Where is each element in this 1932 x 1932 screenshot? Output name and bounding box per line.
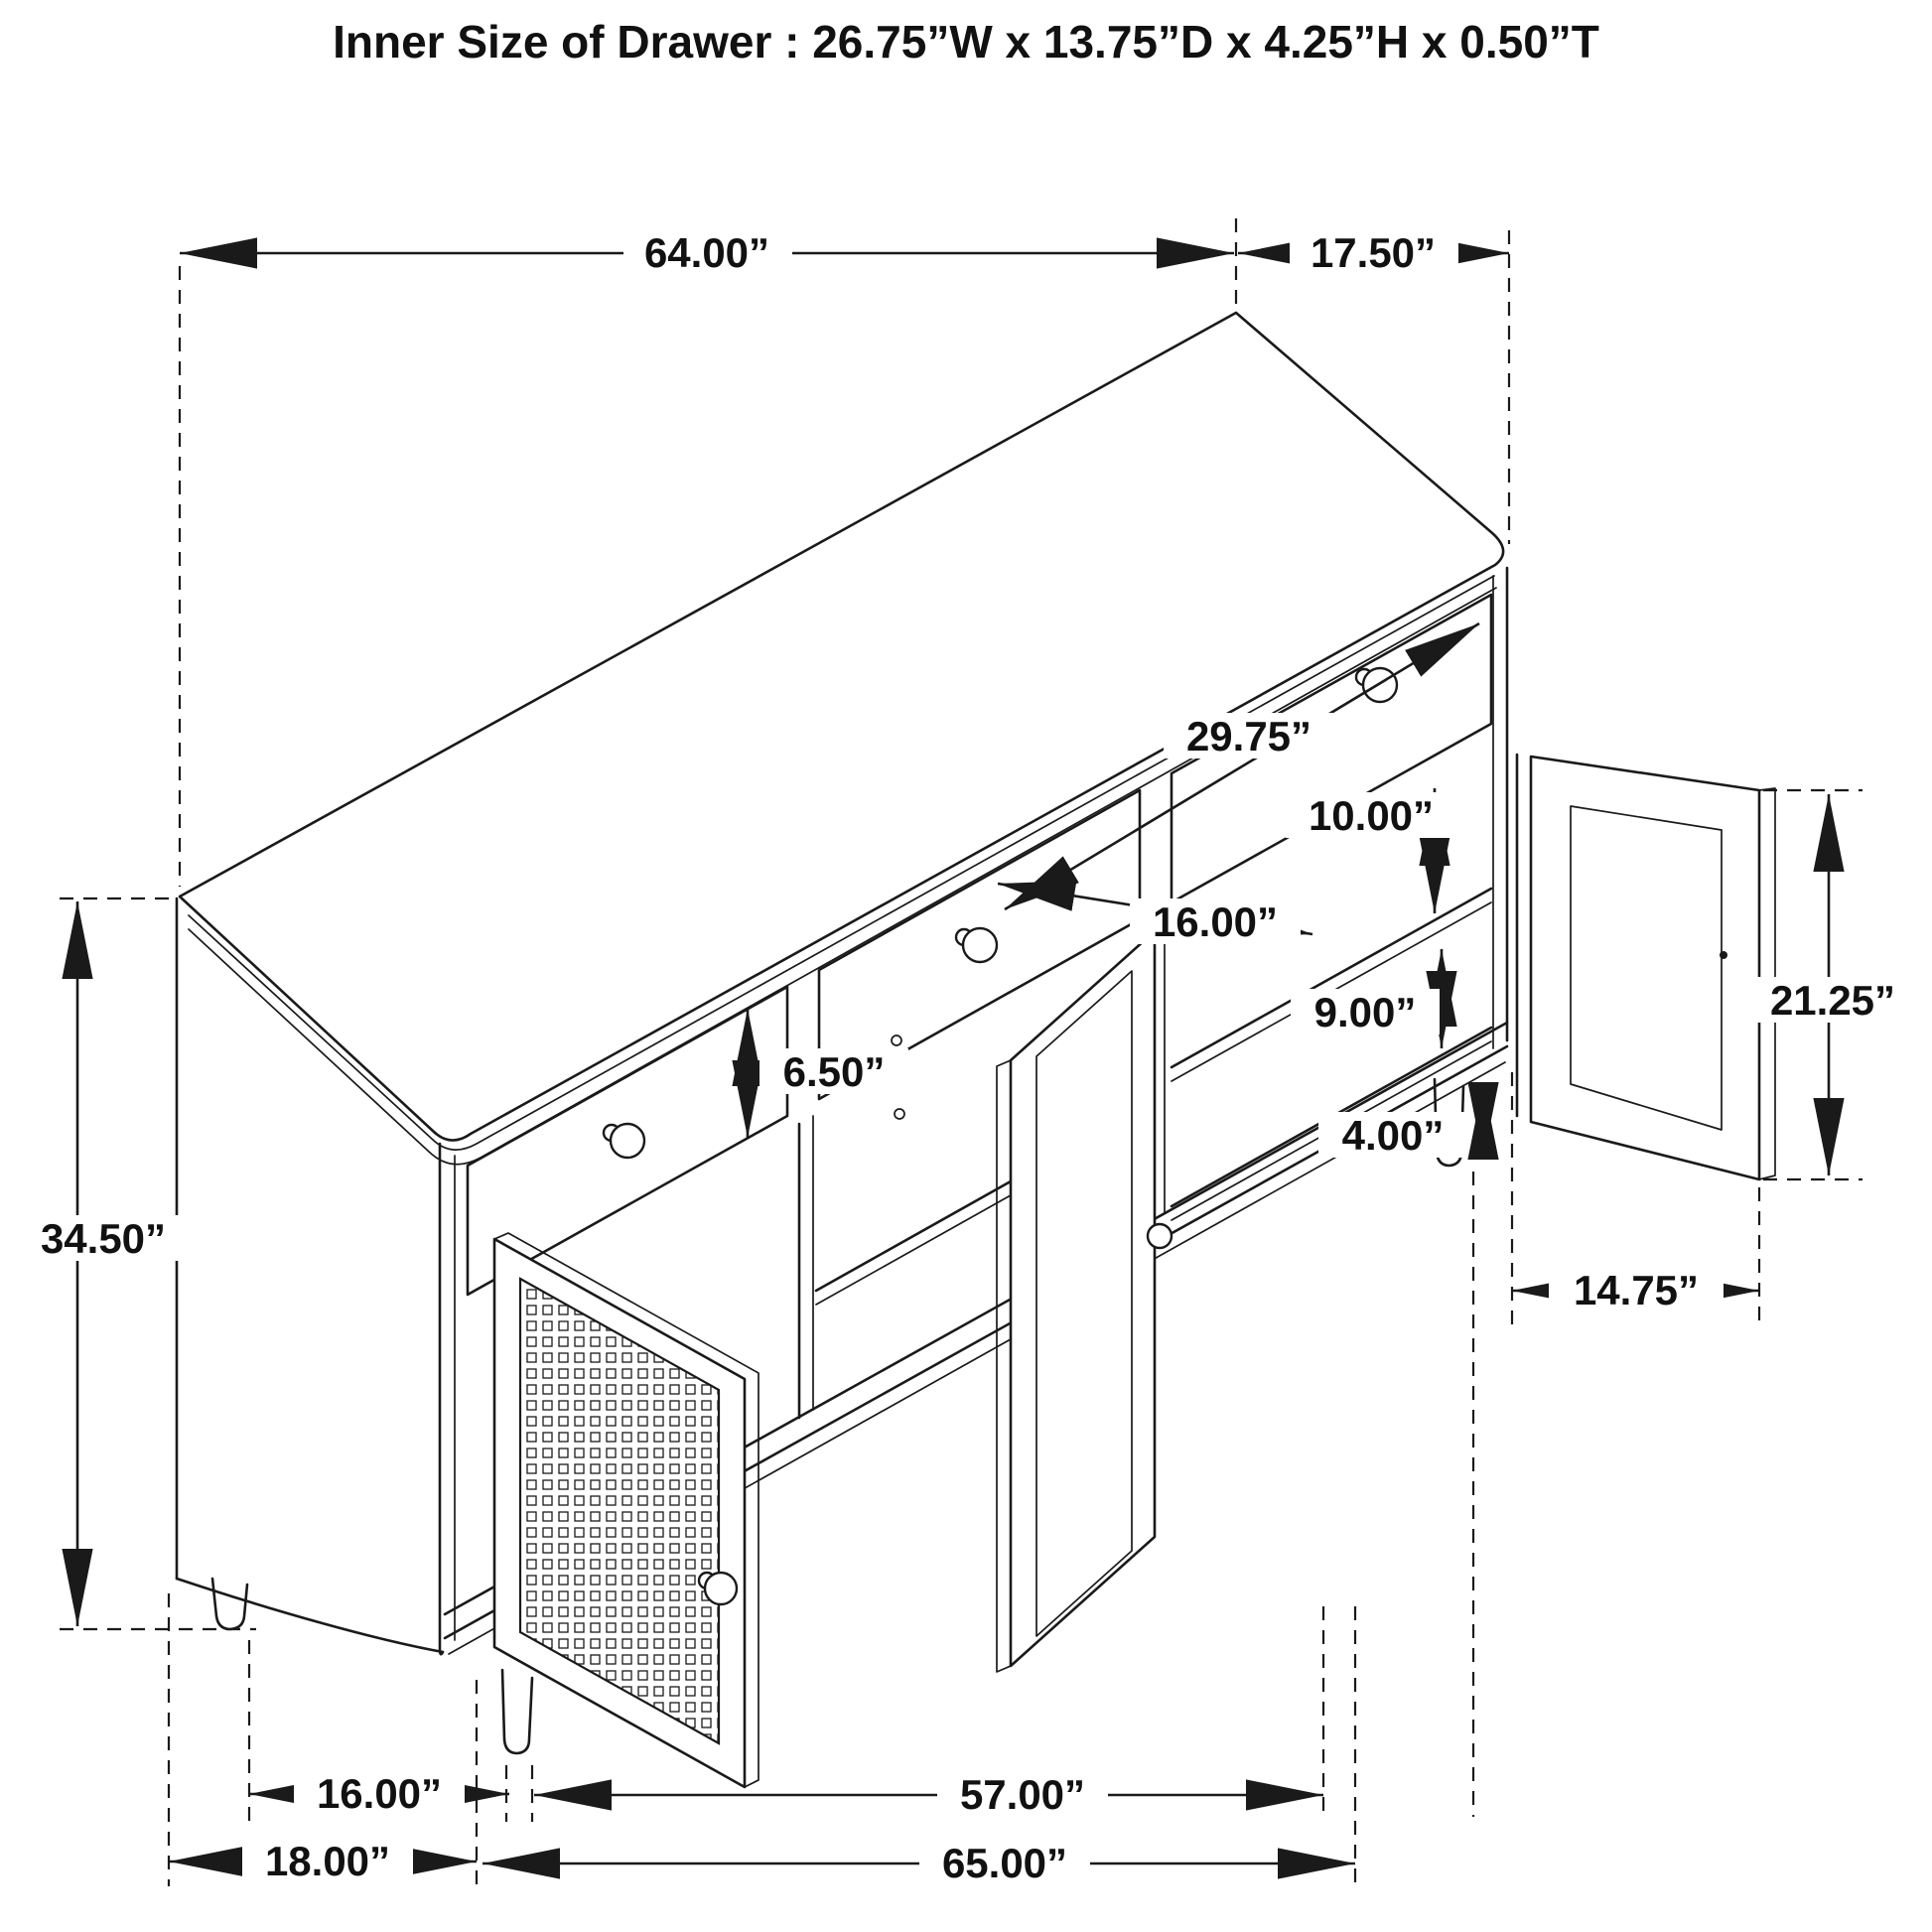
cane-door-open bbox=[494, 1233, 759, 1787]
dim-label-door-width: 14.75” bbox=[1574, 1267, 1699, 1313]
dim-label-door-height: 21.25” bbox=[1770, 977, 1895, 1024]
cane-door-knob bbox=[705, 1573, 737, 1604]
right-door-knob-dot bbox=[1720, 951, 1727, 959]
shelf-pin-hole bbox=[892, 1035, 901, 1045]
dim-middle-opening-width: 16.00” bbox=[998, 884, 1312, 945]
dim-label-drawer-opening-width: 29.75” bbox=[1186, 713, 1311, 759]
middle-door-open bbox=[997, 931, 1172, 1672]
dim-label-leg-height: 4.00” bbox=[1342, 1112, 1445, 1159]
cabinet-drawing bbox=[177, 313, 1775, 1787]
dim-label-top-width: 64.00” bbox=[644, 229, 769, 276]
dim-door-width: 14.75” bbox=[1473, 1072, 1759, 1817]
front-left-leg bbox=[502, 1670, 532, 1753]
dim-label-lower-shelf-gap: 9.00” bbox=[1314, 989, 1417, 1035]
partition-left bbox=[799, 1116, 813, 1418]
dim-upper-shelf-gap: 10.00” bbox=[1286, 788, 1456, 913]
drawer-2-knob bbox=[963, 928, 997, 962]
dim-label-drawer-front-height: 6.50” bbox=[783, 1048, 886, 1095]
page-title: Inner Size of Drawer : 26.75”W x 13.75”D… bbox=[333, 16, 1599, 68]
dim-overall-height: 34.50” bbox=[18, 898, 256, 1629]
dim-label-middle-opening-width: 16.00” bbox=[1153, 898, 1278, 945]
dim-door-height: 21.25” bbox=[1743, 790, 1922, 1179]
drawer-1-knob bbox=[611, 1124, 644, 1158]
dim-lower-shelf-gap: 9.00” bbox=[1291, 949, 1442, 1048]
drawer-3-knob bbox=[1363, 668, 1397, 702]
dim-label-floor-width-overall: 65.00” bbox=[942, 1840, 1067, 1886]
dim-label-overall-height: 34.50” bbox=[41, 1215, 166, 1262]
middle-door-knob bbox=[1148, 1224, 1172, 1248]
dim-label-top-depth: 17.50” bbox=[1311, 229, 1436, 276]
rear-left-leg bbox=[212, 1579, 247, 1629]
dim-label-upper-shelf-gap: 10.00” bbox=[1309, 792, 1434, 839]
drawing-canvas: Inner Size of Drawer : 26.75”W x 13.75”D… bbox=[0, 0, 1932, 1932]
dim-leg-height: 4.00” bbox=[1318, 1082, 1483, 1160]
dim-label-floor-width-legs: 57.00” bbox=[960, 1771, 1085, 1818]
dim-drawer-front-height: 6.50” bbox=[748, 1009, 908, 1138]
right-door-open bbox=[1517, 755, 1775, 1179]
dim-label-floor-leg-spacing: 16.00” bbox=[317, 1770, 442, 1817]
shelf-pin-hole bbox=[895, 1109, 904, 1119]
dim-label-floor-depth: 18.00” bbox=[265, 1838, 390, 1884]
cabinet-dimension-diagram: Inner Size of Drawer : 26.75”W x 13.75”D… bbox=[0, 0, 1932, 1932]
